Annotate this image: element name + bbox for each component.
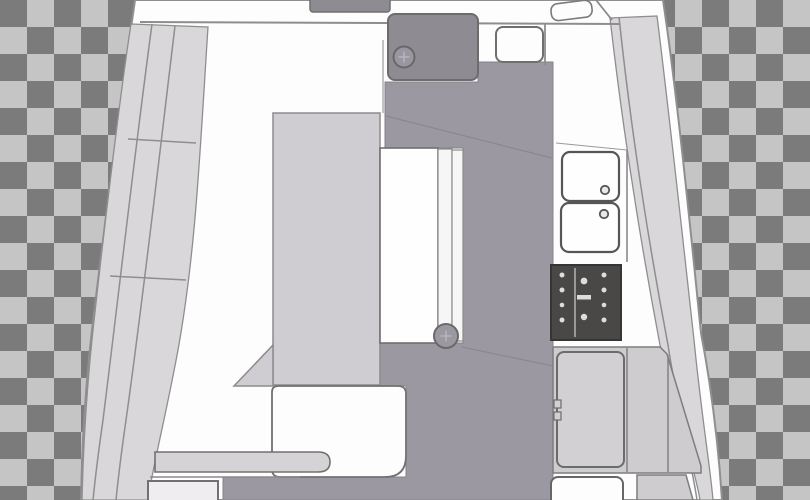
table-leaf-folded <box>452 150 463 341</box>
fridge-hinge <box>554 412 561 420</box>
helm-seat <box>496 27 543 62</box>
companionway-step-bar <box>155 452 330 472</box>
galley-sink-upper <box>562 152 619 201</box>
table-leaf-folded <box>438 149 452 342</box>
fridge <box>557 352 624 467</box>
fridge-hinge <box>554 400 561 408</box>
galley-sink-lower <box>561 203 619 252</box>
sink-faucet <box>601 186 609 194</box>
saloon-table <box>380 148 438 343</box>
settee-backrest <box>273 113 380 385</box>
bow-locker <box>148 481 218 500</box>
cabinet-return <box>637 475 693 500</box>
deck-plan-svg <box>0 0 810 500</box>
sink-faucet <box>600 210 608 218</box>
cockpit-locker <box>310 0 390 12</box>
front-cabin-step <box>551 477 623 500</box>
deck-plan-image <box>0 0 810 500</box>
